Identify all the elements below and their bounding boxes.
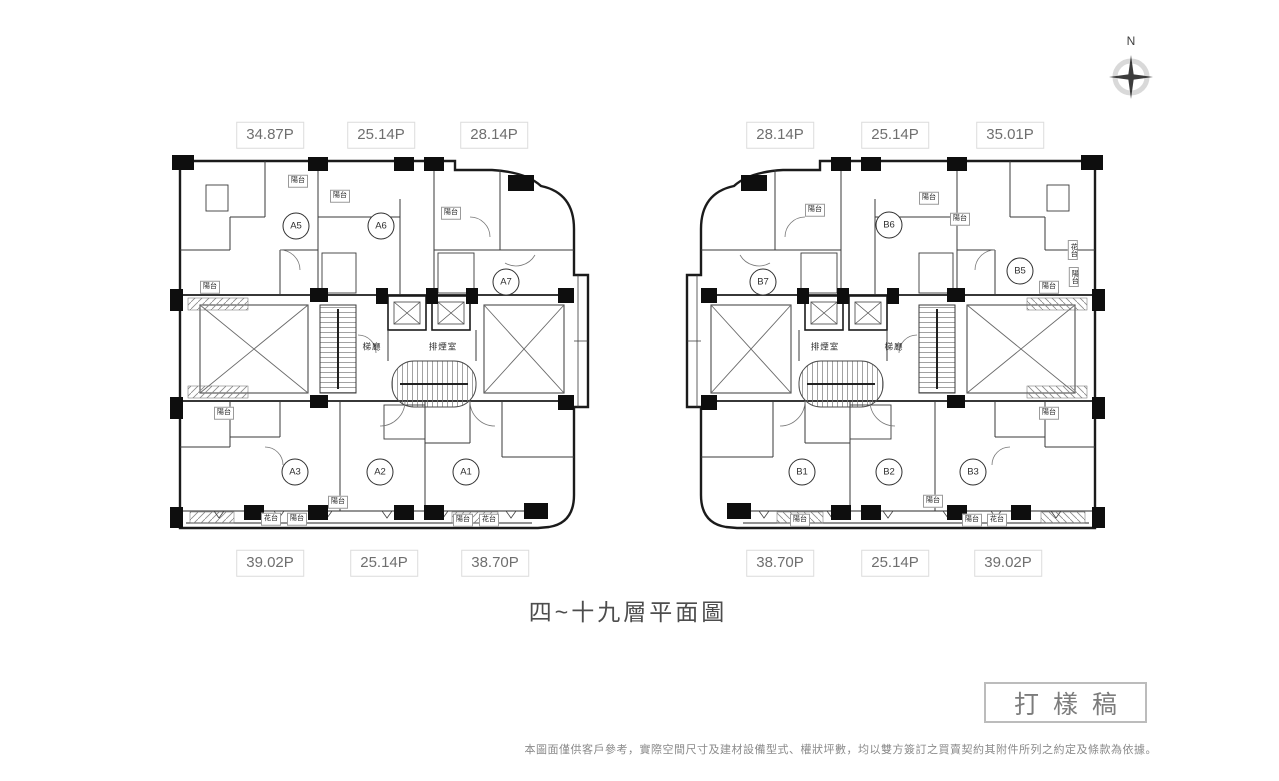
smoke-exhaust-label: 排煙室 xyxy=(809,341,842,354)
unit-label: A1 xyxy=(453,459,480,486)
floor-plan-page: N xyxy=(0,0,1279,781)
flower-bed-label: 花台 xyxy=(987,514,1007,527)
flower-bed-label: 花台 xyxy=(1068,240,1078,260)
compass-rose-icon xyxy=(1105,49,1157,101)
balcony-label: 陽台 xyxy=(923,495,943,508)
unit-label: A6 xyxy=(368,213,395,240)
balcony-label: 陽台 xyxy=(453,514,473,527)
balcony-label: 陽台 xyxy=(962,514,982,527)
balcony-label: 陽台 xyxy=(919,192,939,205)
balcony-label: 陽台 xyxy=(288,175,308,188)
balcony-label: 陽台 xyxy=(1039,407,1059,420)
stair-hall-label: 梯廳 xyxy=(882,341,905,354)
balcony-label: 陽台 xyxy=(328,496,348,509)
balcony-label: 陽台 xyxy=(950,213,970,226)
stair-hall-label: 梯廳 xyxy=(360,341,383,354)
balcony-label: 陽台 xyxy=(1039,281,1059,294)
balcony-label: 陽台 xyxy=(330,190,350,203)
balcony-label: 陽台 xyxy=(200,281,220,294)
unit-label: A7 xyxy=(493,269,520,296)
compass-north-label: N xyxy=(1127,34,1136,48)
balcony-label: 陽台 xyxy=(790,514,810,527)
smoke-exhaust-label: 排煙室 xyxy=(427,341,460,354)
unit-label: B5 xyxy=(1007,258,1034,285)
flower-bed-label: 花台 xyxy=(261,513,281,526)
balcony-label: 陽台 xyxy=(287,513,307,526)
compass: N xyxy=(1103,34,1159,101)
balcony-label: 陽台 xyxy=(1069,267,1079,287)
balcony-label: 陽台 xyxy=(214,407,234,420)
floor-plans-drawing xyxy=(0,0,1279,781)
unit-label: B6 xyxy=(876,212,903,239)
unit-label: B2 xyxy=(876,459,903,486)
unit-label: A2 xyxy=(367,459,394,486)
unit-label: B7 xyxy=(750,269,777,296)
unit-label: A5 xyxy=(283,213,310,240)
unit-label: B3 xyxy=(960,459,987,486)
balcony-label: 陽台 xyxy=(805,204,825,217)
balcony-label: 陽台 xyxy=(441,207,461,220)
unit-label: B1 xyxy=(789,459,816,486)
unit-label: A3 xyxy=(282,459,309,486)
flower-bed-label: 花台 xyxy=(479,514,499,527)
